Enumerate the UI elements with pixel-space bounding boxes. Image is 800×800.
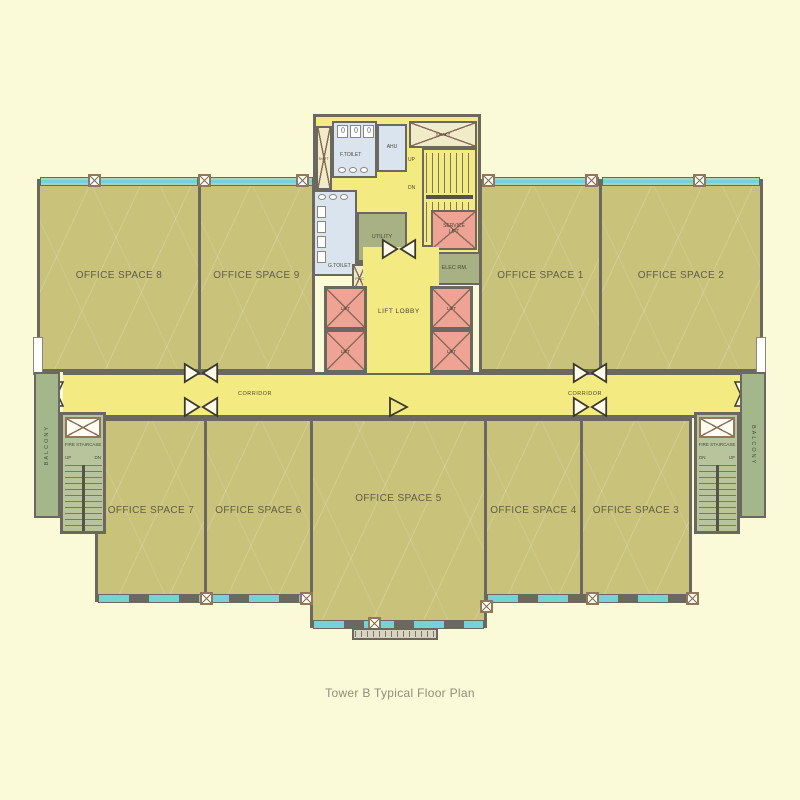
- column-marker-icon: [198, 174, 211, 187]
- room-office-space-1: OFFICE SPACE 1: [479, 179, 602, 372]
- room-label: F.TOILET: [340, 153, 361, 159]
- wc-stall: [363, 125, 374, 138]
- wc-stall: [317, 251, 326, 263]
- lift-label: LIFT: [447, 349, 456, 354]
- room-label: SHAFT: [319, 156, 329, 161]
- lift-label: LIFT: [341, 306, 350, 311]
- room-label: OFFICE SPACE 3: [593, 505, 680, 516]
- room-label: G.TOILET: [328, 264, 351, 270]
- side-window: [756, 337, 766, 375]
- window-band: [602, 177, 760, 186]
- room-label: OFFICE SPACE 1: [497, 270, 584, 281]
- stair-treads: [426, 153, 473, 193]
- room-office-space-4: OFFICE SPACE 4: [484, 418, 583, 602]
- door-swing-icon: [388, 396, 410, 418]
- column-marker-icon: [88, 174, 101, 187]
- room-label: OFFICE SPACE 7: [108, 505, 195, 516]
- room-shaft-top: SHAFT: [409, 121, 477, 148]
- column-marker-icon: [585, 174, 598, 187]
- room-label: OFFICE SPACE 5: [355, 493, 442, 504]
- window-band: [482, 177, 599, 186]
- column-marker-icon: [686, 592, 699, 605]
- dn-label: DN: [699, 455, 706, 460]
- room-g-toilet: G.TOILET: [313, 190, 357, 276]
- room-label: ELEC RM.: [442, 265, 468, 271]
- toilet-icon: [367, 127, 371, 133]
- toilet-icon: [354, 127, 358, 133]
- fire-staircase-label: FIRE STAIRCASE: [63, 442, 103, 447]
- step-treads: [355, 631, 435, 637]
- room-label: OFFICE SPACE 6: [215, 505, 302, 516]
- room-office-space-9: OFFICE SPACE 9: [198, 179, 315, 372]
- column-marker-icon: [693, 174, 706, 187]
- corridor-label: CORRIDOR: [238, 391, 272, 397]
- door-double-icon: [572, 361, 608, 385]
- stair-landing-rail: [426, 195, 473, 199]
- fire-staircase-left: FIRE STAIRCASE UP DN: [60, 412, 106, 534]
- fire-staircase-label: FIRE STAIRCASE: [697, 442, 737, 447]
- stair-treads: [65, 465, 82, 531]
- lift-lobby-label: LIFT LOBBY: [378, 308, 420, 315]
- column-marker-icon: [586, 592, 599, 605]
- room-f-toilet: F.TOILET: [332, 121, 377, 178]
- door-double-icon: [183, 361, 219, 385]
- room-office-space-6: OFFICE SPACE 6: [204, 418, 313, 602]
- door-double-icon: [381, 238, 417, 260]
- stair-up-label: UP: [408, 158, 415, 164]
- floor-plan: OFFICE SPACE 8 OFFICE SPACE 9 OFFICE SPA…: [0, 0, 800, 800]
- column-marker-icon: [296, 174, 309, 187]
- entrance-steps: [352, 628, 438, 640]
- lift-label: LIFT: [447, 306, 456, 311]
- lift-top-left: LIFT: [324, 286, 367, 330]
- basin-icon: [340, 194, 348, 200]
- balcony-label: BALCONY: [44, 425, 50, 465]
- room-office-space-5: OFFICE SPACE 5: [310, 418, 487, 628]
- basin-icon: [360, 167, 368, 173]
- room-service-lift: SERVICE LIFT: [431, 210, 477, 250]
- wc-stall: [337, 125, 348, 138]
- up-label: UP: [729, 455, 735, 460]
- room-office-space-2: OFFICE SPACE 2: [599, 179, 763, 372]
- door-double-icon: [183, 395, 219, 419]
- stair-direction-labels: DN UP: [699, 455, 735, 460]
- side-window: [33, 337, 43, 375]
- fire-staircase-right: FIRE STAIRCASE DN UP: [694, 412, 740, 534]
- room-shaft: SHAFT: [316, 126, 332, 190]
- stair-dn-label: DN: [408, 186, 415, 192]
- shaft-marker-icon: [65, 417, 101, 438]
- lift-top-right: LIFT: [430, 286, 473, 330]
- up-label: UP: [65, 455, 71, 460]
- toilet-icon: [341, 127, 345, 133]
- wc-stall: [317, 206, 326, 218]
- lift-label: LIFT: [341, 349, 350, 354]
- room-office-space-8: OFFICE SPACE 8: [37, 179, 201, 372]
- room-office-space-7: OFFICE SPACE 7: [95, 418, 207, 602]
- stair-treads: [699, 465, 716, 531]
- wc-stall: [317, 221, 326, 233]
- room-office-space-3: OFFICE SPACE 3: [580, 418, 692, 602]
- wc-stall: [317, 236, 326, 248]
- column-marker-icon: [480, 600, 493, 613]
- column-marker-icon: [482, 174, 495, 187]
- basin-icon: [338, 167, 346, 173]
- room-ahu: AHU: [377, 124, 407, 172]
- room-label: OFFICE SPACE 2: [638, 270, 725, 281]
- column-marker-icon: [200, 592, 213, 605]
- balcony-label: BALCONY: [750, 425, 756, 465]
- basin-icon: [329, 194, 337, 200]
- stair-direction-labels: UP DN: [65, 455, 101, 460]
- column-marker-icon: [300, 592, 313, 605]
- basin-icon: [349, 167, 357, 173]
- room-label: OFFICE SPACE 8: [76, 270, 163, 281]
- room-label: AHU: [387, 145, 398, 151]
- room-label: PHC: [355, 276, 363, 281]
- dn-label: DN: [95, 455, 102, 460]
- balcony-right: BALCONY: [740, 372, 766, 518]
- balcony-left: BALCONY: [34, 372, 60, 518]
- door-double-icon: [572, 395, 608, 419]
- room-label: SHAFT: [436, 132, 451, 137]
- window-band: [40, 177, 198, 186]
- room-label: OFFICE SPACE 4: [490, 505, 577, 516]
- plan-caption: Tower B Typical Floor Plan: [250, 686, 550, 700]
- stair-treads: [719, 465, 736, 531]
- room-label: OFFICE SPACE 9: [213, 270, 300, 281]
- room-label: SERVICE LIFT: [441, 224, 467, 236]
- basin-icon: [318, 194, 326, 200]
- stair-treads: [85, 465, 102, 531]
- lift-bottom-left: LIFT: [324, 329, 367, 373]
- shaft-marker-icon: [699, 417, 735, 438]
- lift-bottom-right: LIFT: [430, 329, 473, 373]
- wc-stall: [350, 125, 361, 138]
